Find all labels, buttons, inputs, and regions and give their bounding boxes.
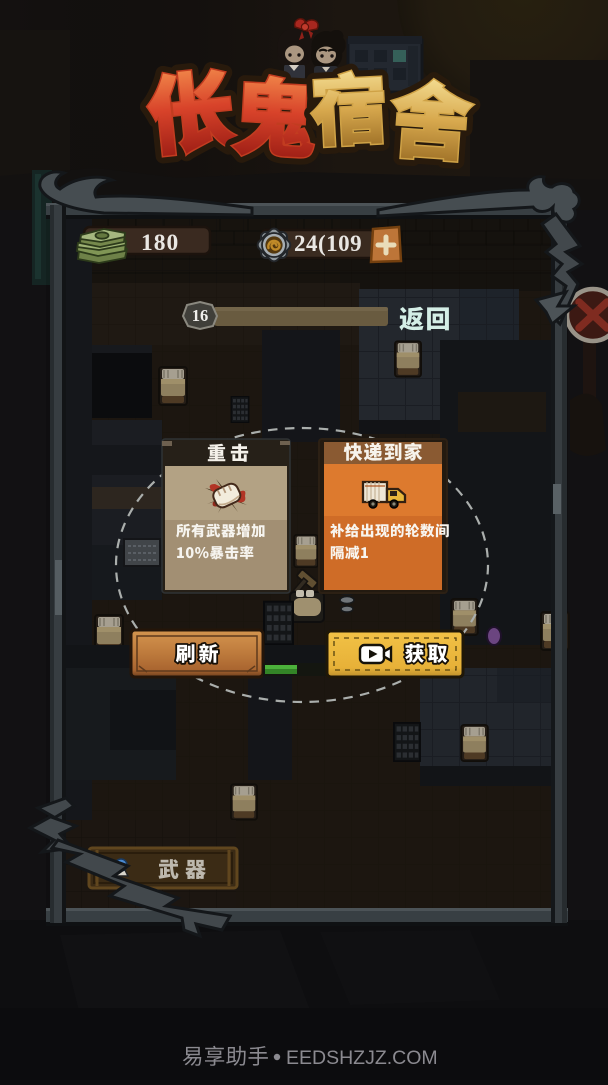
svg-text:24(109: 24(109 bbox=[294, 231, 362, 256]
svg-text:180: 180 bbox=[141, 230, 179, 256]
svg-text:EEDSHZJZ.COM: EEDSHZJZ.COM bbox=[286, 1047, 438, 1069]
svg-text:16: 16 bbox=[192, 306, 209, 325]
